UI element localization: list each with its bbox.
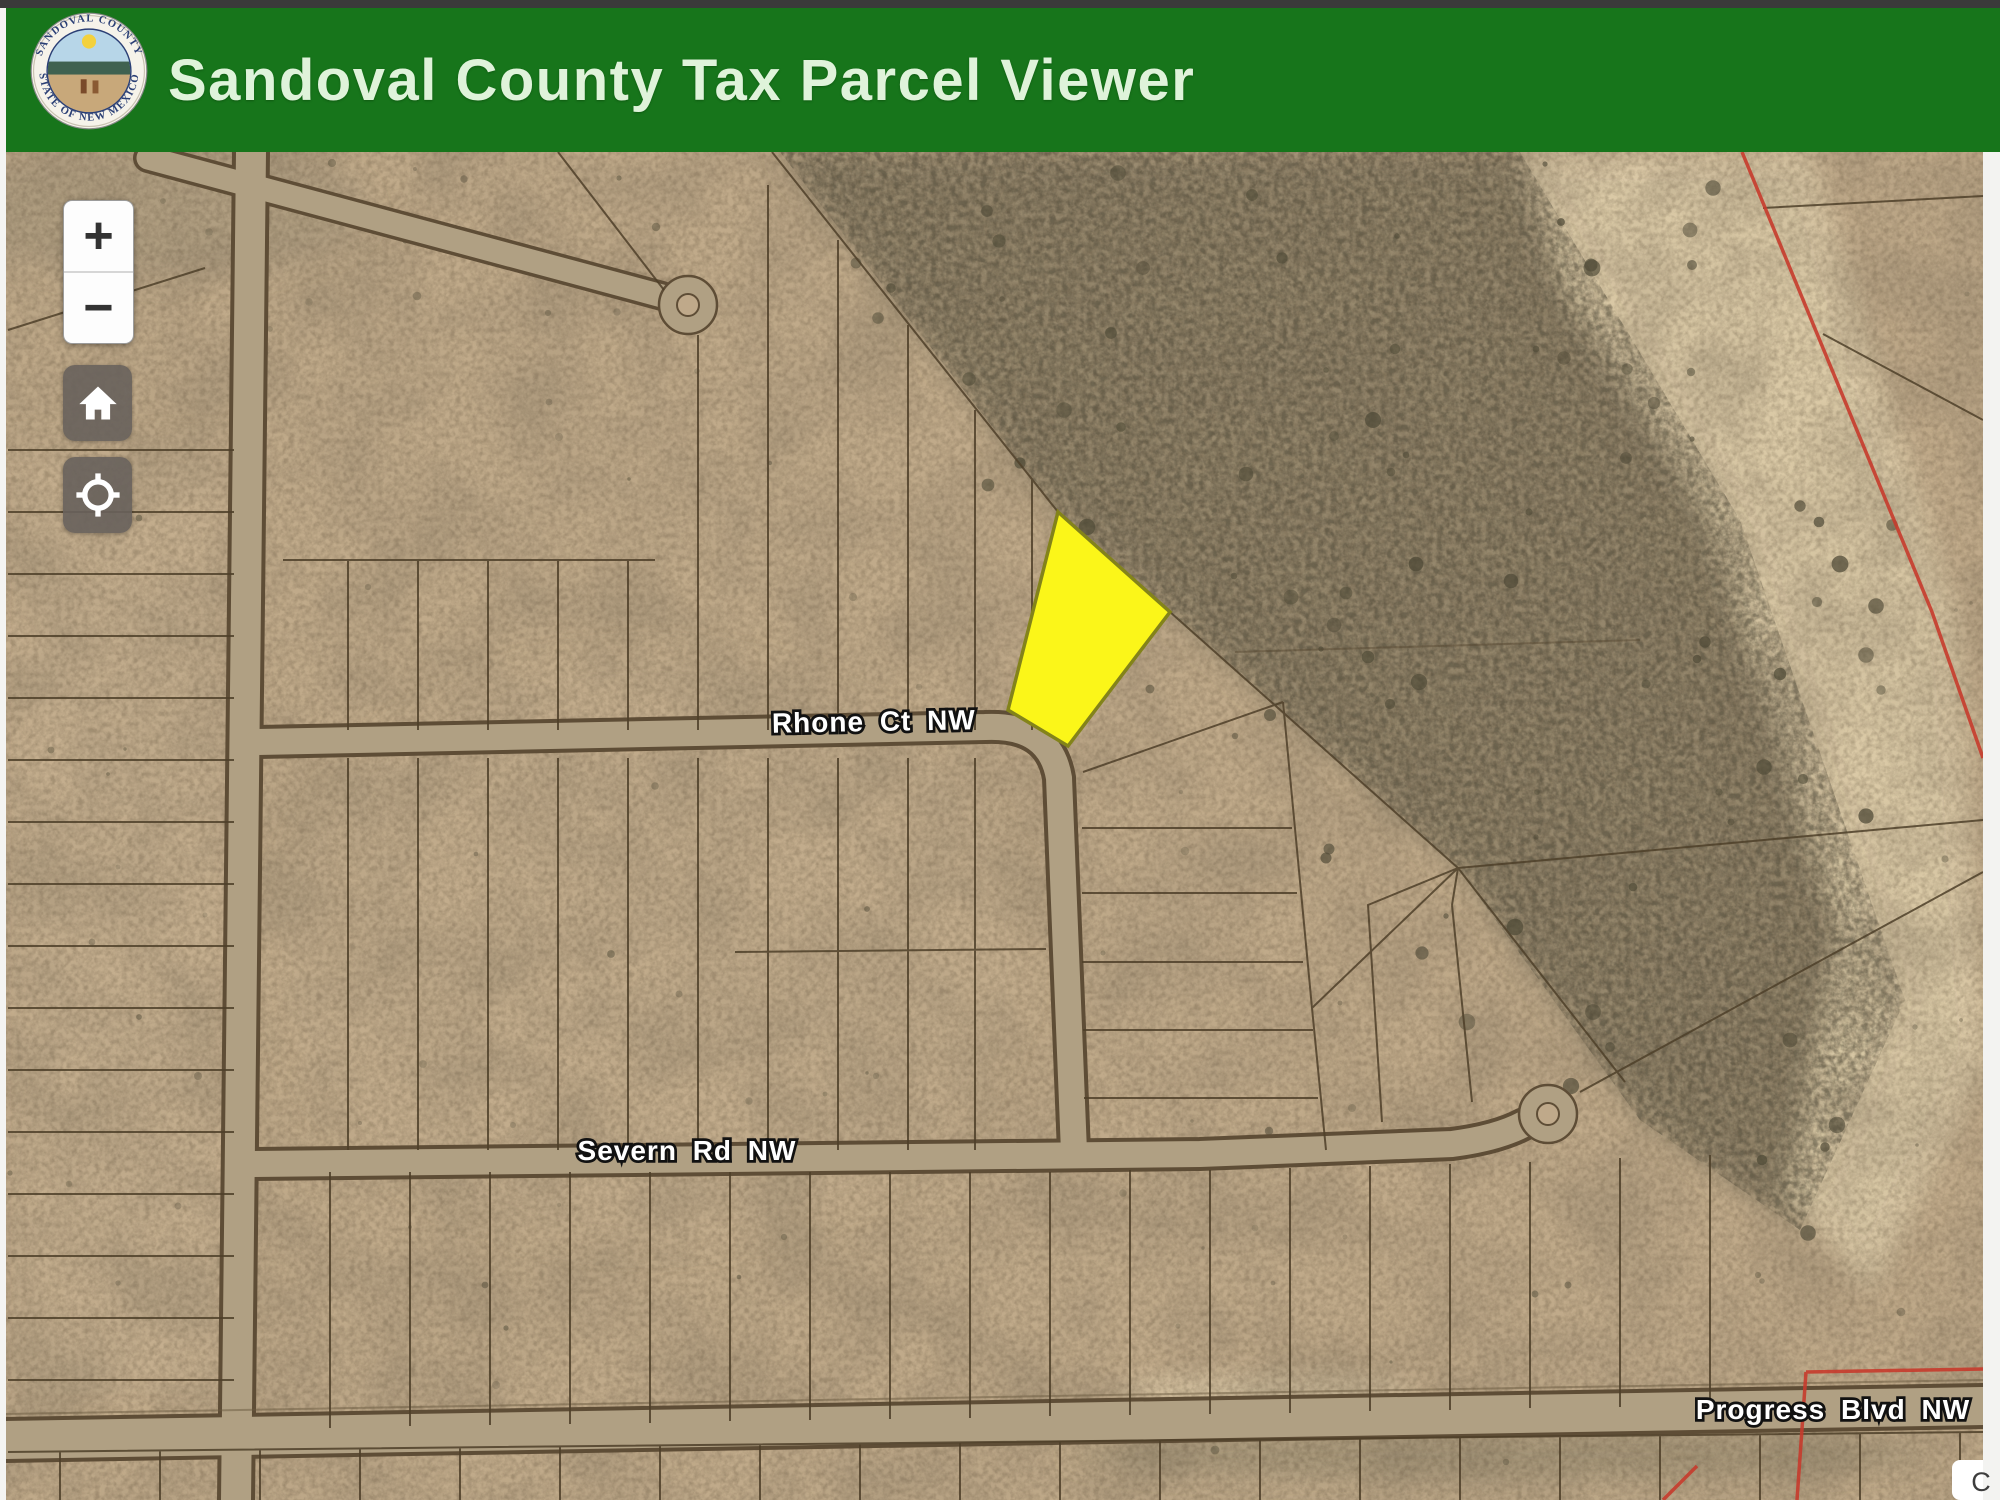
- app-header: SANDOVAL COUNTY STATE OF NEW MEXICO Sand…: [0, 8, 2000, 152]
- street-label-progress: Progress Blvd NW: [1696, 1394, 1970, 1425]
- window-top-edge: [0, 0, 2000, 8]
- home-button[interactable]: [63, 365, 132, 441]
- zoom-in-button[interactable]: +: [64, 201, 133, 273]
- terrain-layer: [0, 140, 2000, 1500]
- locate-button[interactable]: [63, 457, 132, 533]
- home-icon: [76, 381, 120, 425]
- zoom-out-button[interactable]: −: [64, 273, 133, 343]
- minus-icon: −: [83, 278, 113, 338]
- app: Rhone Ct NW Severn Rd NW Progress Blvd N…: [0, 0, 2000, 1500]
- zoom-control: + −: [63, 200, 134, 344]
- street-label-rhone: Rhone Ct NW: [772, 704, 976, 739]
- window-left-edge: [0, 8, 6, 1500]
- page-title: Sandoval County Tax Parcel Viewer: [168, 8, 1195, 152]
- county-seal-logo: SANDOVAL COUNTY STATE OF NEW MEXICO: [30, 12, 148, 130]
- attribution: C: [1971, 1467, 1991, 1497]
- street-label-severn: Severn Rd NW: [578, 1135, 797, 1166]
- plus-icon: +: [83, 206, 113, 266]
- locate-icon: [74, 471, 122, 519]
- map-canvas[interactable]: Rhone Ct NW Severn Rd NW Progress Blvd N…: [0, 0, 2000, 1500]
